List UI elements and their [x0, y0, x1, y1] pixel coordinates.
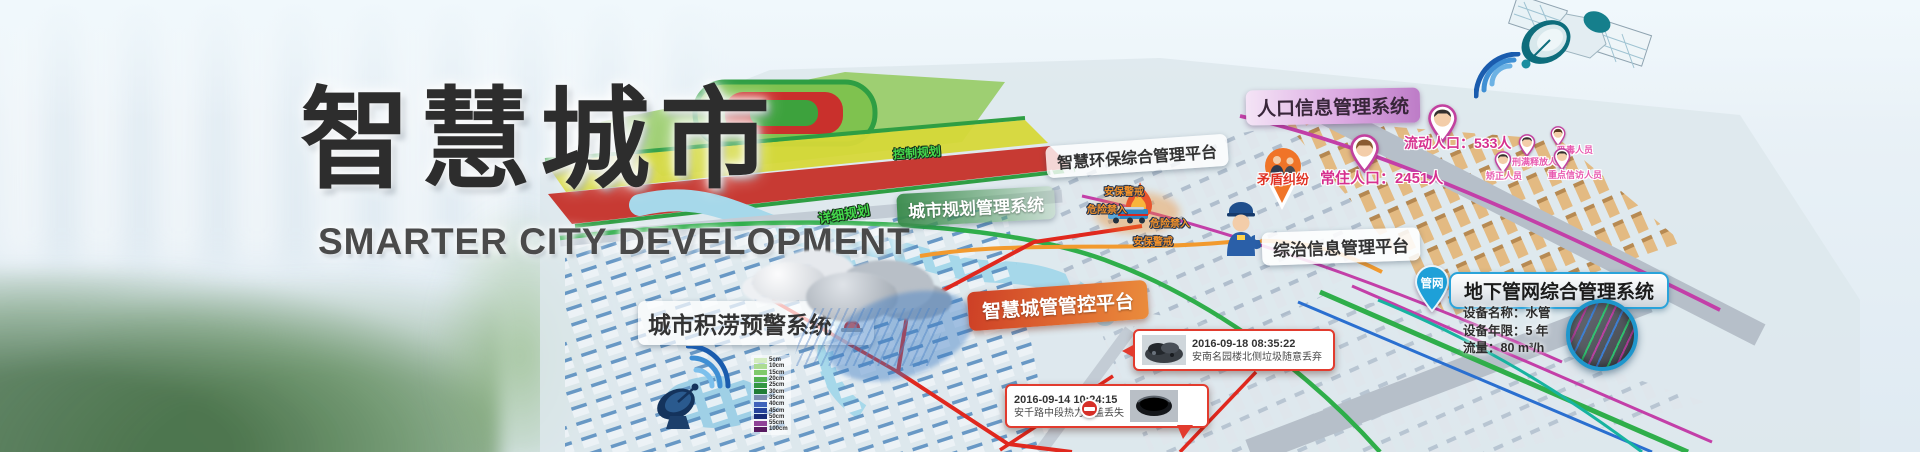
special-group-tag: 矫正人员: [1486, 169, 1522, 182]
pipe-detail-name: 设备名称：水管: [1463, 305, 1551, 323]
resident-population-stat: 常住人口：2451人: [1320, 167, 1443, 188]
callout-tail: [1122, 344, 1135, 358]
legend-swatch: [754, 377, 767, 382]
legend-swatch: [754, 408, 767, 413]
signal-arcs-icon: [686, 346, 744, 402]
legend-row: 25cm: [754, 382, 788, 388]
police-officer-icon: [1219, 199, 1263, 257]
legend-swatch: [754, 402, 767, 407]
legend-label: 50cm: [769, 414, 784, 420]
legend-row: 100cm: [754, 426, 788, 432]
pipes-system-label: 地下管网综合管理系统: [1449, 272, 1669, 309]
pipe-magnifier-view: [1566, 299, 1638, 371]
legend-label: 45cm: [769, 408, 784, 414]
population-system-label: 人口信息管理系统: [1246, 87, 1421, 125]
pipe-network-pin: 管网: [1412, 264, 1452, 312]
floating-population-stat: 流动人口：533人: [1404, 133, 1511, 153]
pipe-details: 设备名称：水管 设备年限：5 年 流量：80 m³/h: [1463, 305, 1551, 358]
security-cordon-tag: 安保警戒: [1104, 183, 1144, 198]
governance-platform-label: 综治信息管理平台: [1261, 227, 1420, 265]
legend-row: 15cm: [754, 370, 788, 376]
pipe-detail-flow: 流量：80 m³/h: [1463, 340, 1551, 358]
legend-row: 55cm: [754, 420, 788, 426]
legend-row: 20cm: [754, 376, 788, 382]
legend-label: 30cm: [769, 389, 784, 395]
control-plan-tag: 控制规划: [892, 142, 941, 162]
event-desc: 安南名园楼北侧垃圾随意丢弃: [1192, 351, 1322, 364]
pipe-detail-age: 设备年限：5 年: [1463, 323, 1551, 341]
event-callout-manhole: 2016-09-14 10:24:15 安千路中段热力井盖丢失: [1005, 384, 1209, 428]
special-group-tag: 重点信访人员: [1548, 168, 1602, 181]
legend-row: 35cm: [754, 395, 788, 401]
legend-swatch: [754, 370, 767, 375]
legend-row: 45cm: [754, 407, 788, 413]
manhole-photo: [1130, 390, 1178, 422]
dispute-tag: 矛盾纠纷: [1257, 169, 1309, 188]
legend-swatch: [754, 421, 767, 426]
legend-row: 40cm: [754, 401, 788, 407]
legend-swatch: [754, 389, 767, 394]
garbage-photo: [1142, 335, 1186, 365]
legend-swatch: [754, 427, 767, 432]
danger-no-entry-tag: 危险禁入: [1150, 215, 1190, 230]
page-title: 智慧城市: [300, 50, 780, 210]
legend-label: 20cm: [769, 376, 784, 382]
event-time: 2016-09-18 08:35:22: [1192, 337, 1322, 351]
legend-label: 100cm: [769, 426, 788, 432]
legend-label: 15cm: [769, 370, 784, 376]
legend-swatch: [754, 395, 767, 400]
legend-label: 10cm: [769, 363, 784, 369]
legend-swatch: [754, 358, 767, 363]
page-subtitle: SMARTER CITY DEVELOPMENT: [318, 221, 911, 263]
special-group-pin: [1518, 134, 1536, 157]
legend-swatch: [754, 364, 767, 369]
callout-tail: [1177, 425, 1193, 439]
danger-no-entry-tag: 危险禁入: [1087, 201, 1127, 216]
legend-row: 30cm: [754, 388, 788, 394]
legend-label: 35cm: [769, 395, 784, 401]
pipe-badge-text: 管网: [1421, 276, 1444, 290]
legend-row: 50cm: [754, 414, 788, 420]
event-desc: 安千路中段热力井盖丢失: [1014, 407, 1124, 420]
smart-city-banner: 智慧城市 SMARTER CITY DEVELOPMENT 城市积涝预警系统 5…: [0, 0, 1920, 452]
legend-label: 5cm: [769, 357, 781, 363]
flood-depth-legend: 5cm 10cm 15cm 20cm 25cm 30cm 35cm 40cm 4…: [751, 355, 791, 435]
security-cordon-tag: 安保警戒: [1133, 233, 1173, 248]
legend-row: 10cm: [754, 363, 788, 369]
legend-label: 55cm: [769, 420, 784, 426]
legend-label: 25cm: [769, 382, 784, 388]
legend-swatch: [754, 383, 767, 388]
event-time: 2016-09-14 10:24:15: [1014, 393, 1124, 407]
satellite-signal-arcs-icon: [1474, 52, 1530, 108]
legend-label: 40cm: [769, 401, 784, 407]
no-entry-sign-icon: [1080, 399, 1099, 418]
event-callout-garbage: 2016-09-18 08:35:22 安南名园楼北侧垃圾随意丢弃: [1133, 329, 1335, 371]
legend-swatch: [754, 414, 767, 419]
